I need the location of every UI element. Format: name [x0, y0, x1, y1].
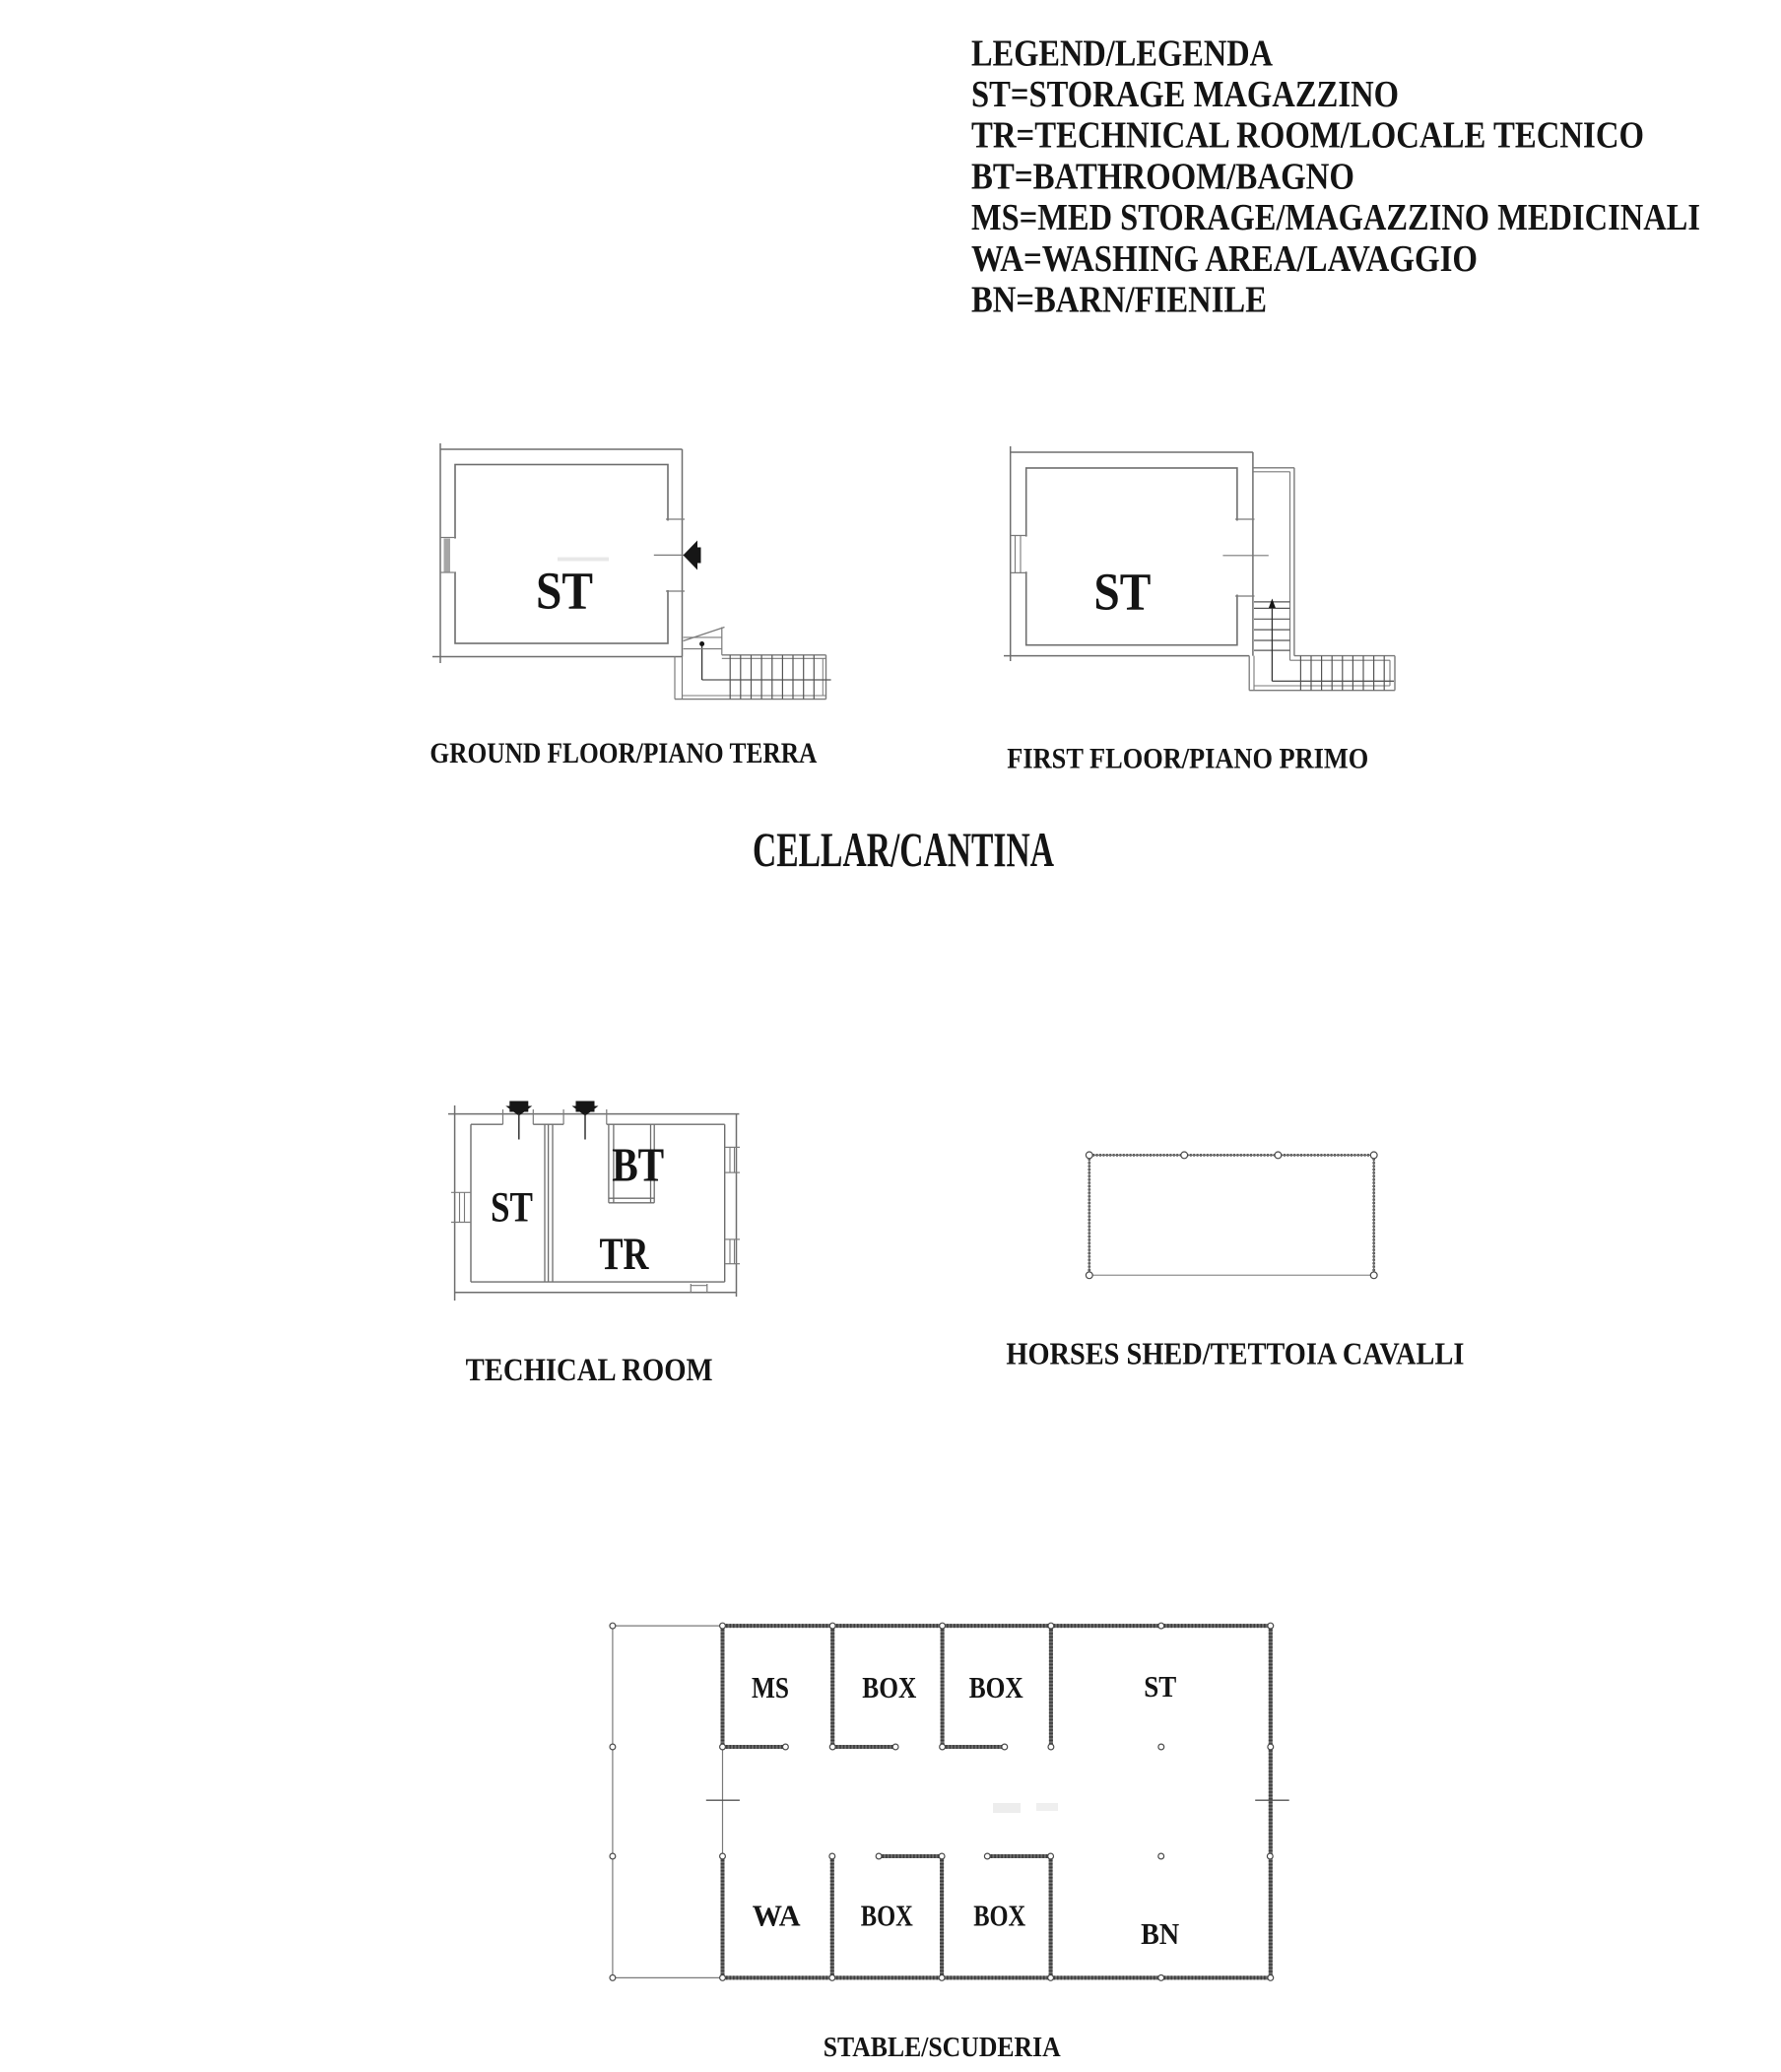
svg-text:BT=BATHROOM/BAGNO: BT=BATHROOM/BAGNO	[971, 156, 1354, 197]
svg-text:BN: BN	[1141, 1916, 1179, 1951]
svg-text:ST: ST	[1093, 563, 1151, 622]
svg-text:GROUND FLOOR/PIANO TERRA: GROUND FLOOR/PIANO TERRA	[429, 737, 817, 769]
svg-text:STABLE/SCUDERIA: STABLE/SCUDERIA	[824, 2032, 1061, 2063]
svg-text:WA: WA	[753, 1899, 802, 1933]
svg-text:BN=BARN/FIENILE: BN=BARN/FIENILE	[971, 279, 1267, 320]
svg-text:BOX: BOX	[969, 1670, 1023, 1704]
svg-text:ST: ST	[491, 1184, 533, 1231]
svg-text:ST: ST	[1144, 1669, 1176, 1704]
svg-text:ST: ST	[536, 562, 593, 621]
svg-text:HORSES SHED/TETTOIA CAVALLI: HORSES SHED/TETTOIA CAVALLI	[1006, 1336, 1464, 1371]
svg-text:LEGEND/LEGENDA: LEGEND/LEGENDA	[971, 33, 1273, 74]
svg-text:TECHICAL ROOM: TECHICAL ROOM	[466, 1353, 713, 1388]
svg-text:MS: MS	[752, 1670, 789, 1704]
svg-text:BOX: BOX	[861, 1899, 913, 1933]
svg-text:MS=MED STORAGE/MAGAZZINO MEDIC: MS=MED STORAGE/MAGAZZINO MEDICINALI	[971, 197, 1700, 238]
svg-text:FIRST FLOOR/PIANO PRIMO: FIRST FLOOR/PIANO PRIMO	[1007, 743, 1368, 775]
svg-text:WA=WASHING AREA/LAVAGGIO: WA=WASHING AREA/LAVAGGIO	[971, 238, 1478, 280]
svg-text:BOX: BOX	[973, 1899, 1025, 1933]
svg-text:TR: TR	[600, 1229, 650, 1280]
svg-text:CELLAR/CANTINA: CELLAR/CANTINA	[753, 822, 1054, 877]
svg-text:TR=TECHNICAL ROOM/LOCALE TECNI: TR=TECHNICAL ROOM/LOCALE TECNICO	[971, 115, 1644, 157]
svg-text:BOX: BOX	[862, 1670, 916, 1704]
svg-text:BT: BT	[612, 1137, 664, 1191]
svg-text:ST=STORAGE MAGAZZINO: ST=STORAGE MAGAZZINO	[971, 74, 1399, 115]
